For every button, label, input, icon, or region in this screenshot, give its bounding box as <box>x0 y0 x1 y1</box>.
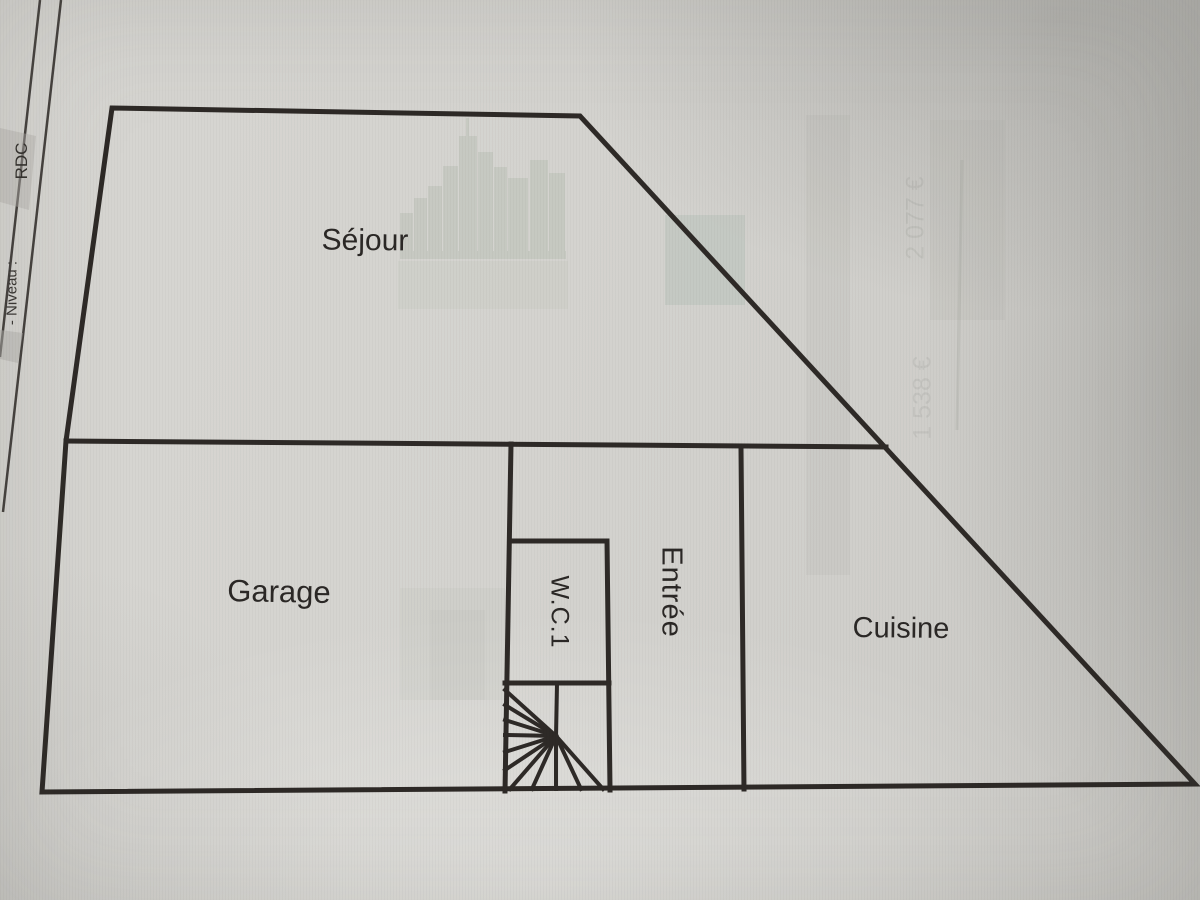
room-label-living: Séjour <box>321 224 408 259</box>
floor-plan-drawing <box>0 0 1200 900</box>
stairs-symbol <box>505 684 603 789</box>
walls <box>42 108 1195 792</box>
room-label-garage: Garage <box>227 573 331 611</box>
stair-column-left-wall <box>505 444 511 791</box>
mid-wall <box>66 441 886 447</box>
sheet-level-label: - Niveau : <box>4 261 21 325</box>
sheet-frame-lines <box>0 0 61 512</box>
bleed-through-skyline <box>398 118 568 309</box>
outer-wall <box>42 108 1195 792</box>
room-label-kitchen: Cuisine <box>852 612 949 646</box>
room-label-wc: W.C.1 <box>545 575 574 648</box>
sheet-level-value: RDC <box>12 143 32 180</box>
bleed-price-text-top: 2 077 € <box>902 176 931 259</box>
room-label-entry: Entrée <box>655 546 688 637</box>
bleed-price-text-bottom: 1 538 € <box>909 356 938 439</box>
floor-plan-photo: Séjour Garage W.C.1 Entrée Cuisine RDC -… <box>0 0 1200 900</box>
entry-right-wall <box>741 447 744 789</box>
